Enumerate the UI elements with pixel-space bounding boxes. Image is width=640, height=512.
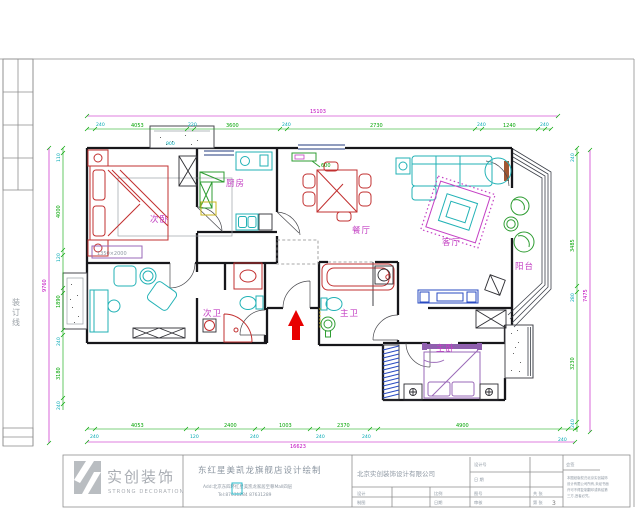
field-label: 日期 bbox=[434, 500, 442, 506]
project-address: Add:北京东四环红星美凯龙家居至尊Mall四层 bbox=[203, 483, 293, 490]
binding-line-char: 装 bbox=[12, 297, 20, 307]
dim-left: 9760 110 4000 120 1890 240 3180 240 bbox=[42, 146, 65, 445]
dim-text: 120 bbox=[56, 253, 62, 262]
dim-bottom: 4053 2400 1003 2370 4900 240 120 240 240… bbox=[85, 423, 577, 450]
cabinet-dim: 600 bbox=[321, 163, 331, 169]
dim-text: 2370 bbox=[337, 423, 350, 429]
dim-text: 240 bbox=[250, 434, 259, 440]
dim-text: 280 bbox=[570, 293, 576, 302]
binding-line-char: 线 bbox=[12, 317, 20, 327]
dim-text: 240 bbox=[56, 337, 62, 346]
dim-text: 110 bbox=[56, 153, 62, 162]
note-line: 许可不得复制翻印或转给第 bbox=[567, 487, 608, 492]
project-title: 东红星美凯龙旗舰店设计绘制 bbox=[198, 465, 322, 476]
dim-text: 240 bbox=[56, 401, 62, 410]
dim-right: 240 3485 280 3230 240 7475 bbox=[570, 146, 592, 434]
field-label: 设计 bbox=[357, 490, 365, 497]
study-furniture bbox=[90, 266, 185, 338]
dim-text: 240 bbox=[282, 122, 291, 128]
room-label-bath1: 主卫 bbox=[340, 308, 359, 319]
dim-text: 1890 bbox=[56, 295, 62, 308]
dim-text: 1240 bbox=[503, 123, 516, 129]
dim-text: 16623 bbox=[290, 444, 306, 450]
field-label: 第 张 bbox=[533, 499, 544, 506]
room-label-bedroom1: 主卧 bbox=[436, 343, 455, 354]
balcony-door-leaf bbox=[504, 161, 509, 181]
field-label: 日 期 bbox=[474, 477, 484, 483]
dim-text: 1003 bbox=[279, 423, 292, 429]
dim-text: 3180 bbox=[56, 367, 62, 380]
dim-text: 4053 bbox=[131, 123, 144, 129]
company-name: 北京实创装饰设计有限公司 bbox=[357, 469, 435, 478]
company-logo: 实创装饰 STRONG DECORATION bbox=[74, 461, 185, 495]
bath1-fixtures bbox=[320, 264, 394, 337]
dim-text: 3230 bbox=[570, 357, 576, 370]
room-label-living: 客厅 bbox=[442, 237, 461, 248]
drawing-sheet: 装 订 线 bbox=[0, 0, 640, 512]
floor-plan-canvas: 装 订 线 bbox=[0, 0, 640, 512]
field-label: 图号 bbox=[474, 491, 482, 497]
project-info: 东红星美凯龙旗舰店设计绘制 Add:北京东四环红星美凯龙家居至尊Mall四层 T… bbox=[198, 465, 322, 498]
sign-label: 会签 bbox=[566, 461, 575, 468]
dim-text: 900 bbox=[166, 141, 175, 147]
dim-text: 240 bbox=[90, 434, 99, 440]
logo-name-cn: 实创装饰 bbox=[107, 468, 175, 486]
field-label: 设计号 bbox=[474, 461, 487, 468]
page-number: 3 bbox=[552, 500, 556, 507]
dim-text: 4000 bbox=[56, 205, 62, 218]
dim-text: 240 bbox=[96, 122, 105, 128]
room-label-dining: 餐厅 bbox=[352, 226, 371, 236]
note-line: 设计有限公司所有,未经书面 bbox=[567, 481, 609, 486]
field-label: 审核 bbox=[474, 499, 483, 506]
dim-text: 9760 bbox=[42, 279, 48, 292]
dim-text: 240 bbox=[316, 434, 325, 440]
room-label-kitchen: 厨房 bbox=[226, 178, 245, 189]
dim-text: 2730 bbox=[370, 123, 383, 129]
dim-text: 3600 bbox=[226, 123, 239, 129]
dim-text: 240 bbox=[477, 122, 486, 128]
dim-text: 3485 bbox=[570, 239, 576, 252]
balcony-furniture bbox=[504, 197, 534, 252]
title-fields: 北京实创装饰设计有限公司 设计号 日 期 设计 制图 比例 日期 图号 审核 共… bbox=[357, 461, 609, 507]
room-label-balcony: 阳台 bbox=[515, 261, 534, 272]
entry-arrow bbox=[288, 310, 304, 340]
dim-text: 7475 bbox=[583, 289, 589, 302]
dim-text: 4053 bbox=[131, 423, 144, 429]
kitchen-furniture bbox=[200, 152, 272, 230]
title-block: 实创装饰 STRONG DECORATION 东红星美凯龙旗舰店设计绘制 Add… bbox=[63, 455, 630, 507]
note-line: 三方,违者必究。 bbox=[567, 493, 592, 498]
field-label: 比例 bbox=[434, 490, 442, 497]
dim-text: 4900 bbox=[456, 423, 469, 429]
dim-text: 120 bbox=[190, 434, 199, 440]
bath2-fixtures bbox=[203, 263, 263, 342]
project-tel: Tel:87631284 87631289 bbox=[217, 492, 272, 498]
dim-text: 220 bbox=[188, 122, 197, 128]
note-line: 本图纸版权归北京实创装饰 bbox=[567, 475, 608, 480]
dim-text: 240 bbox=[570, 419, 576, 428]
binding-line-char: 订 bbox=[12, 307, 20, 317]
field-label: 共 张 bbox=[533, 490, 544, 497]
dim-text: 240 bbox=[362, 434, 371, 440]
bed-size-note: 1350×2000 bbox=[97, 251, 127, 257]
room-label-bath2: 次卫 bbox=[203, 308, 222, 319]
dim-text: 2400 bbox=[224, 423, 237, 429]
dim-text: 240 bbox=[540, 122, 549, 128]
dim-text: 240 bbox=[570, 153, 576, 162]
room-label-bedroom2: 次卧 bbox=[150, 214, 169, 225]
field-label: 制图 bbox=[357, 499, 365, 506]
dim-text: 15103 bbox=[310, 109, 326, 115]
logo-name-en: STRONG DECORATION bbox=[108, 489, 185, 495]
dining-furniture: 600 bbox=[292, 153, 371, 221]
